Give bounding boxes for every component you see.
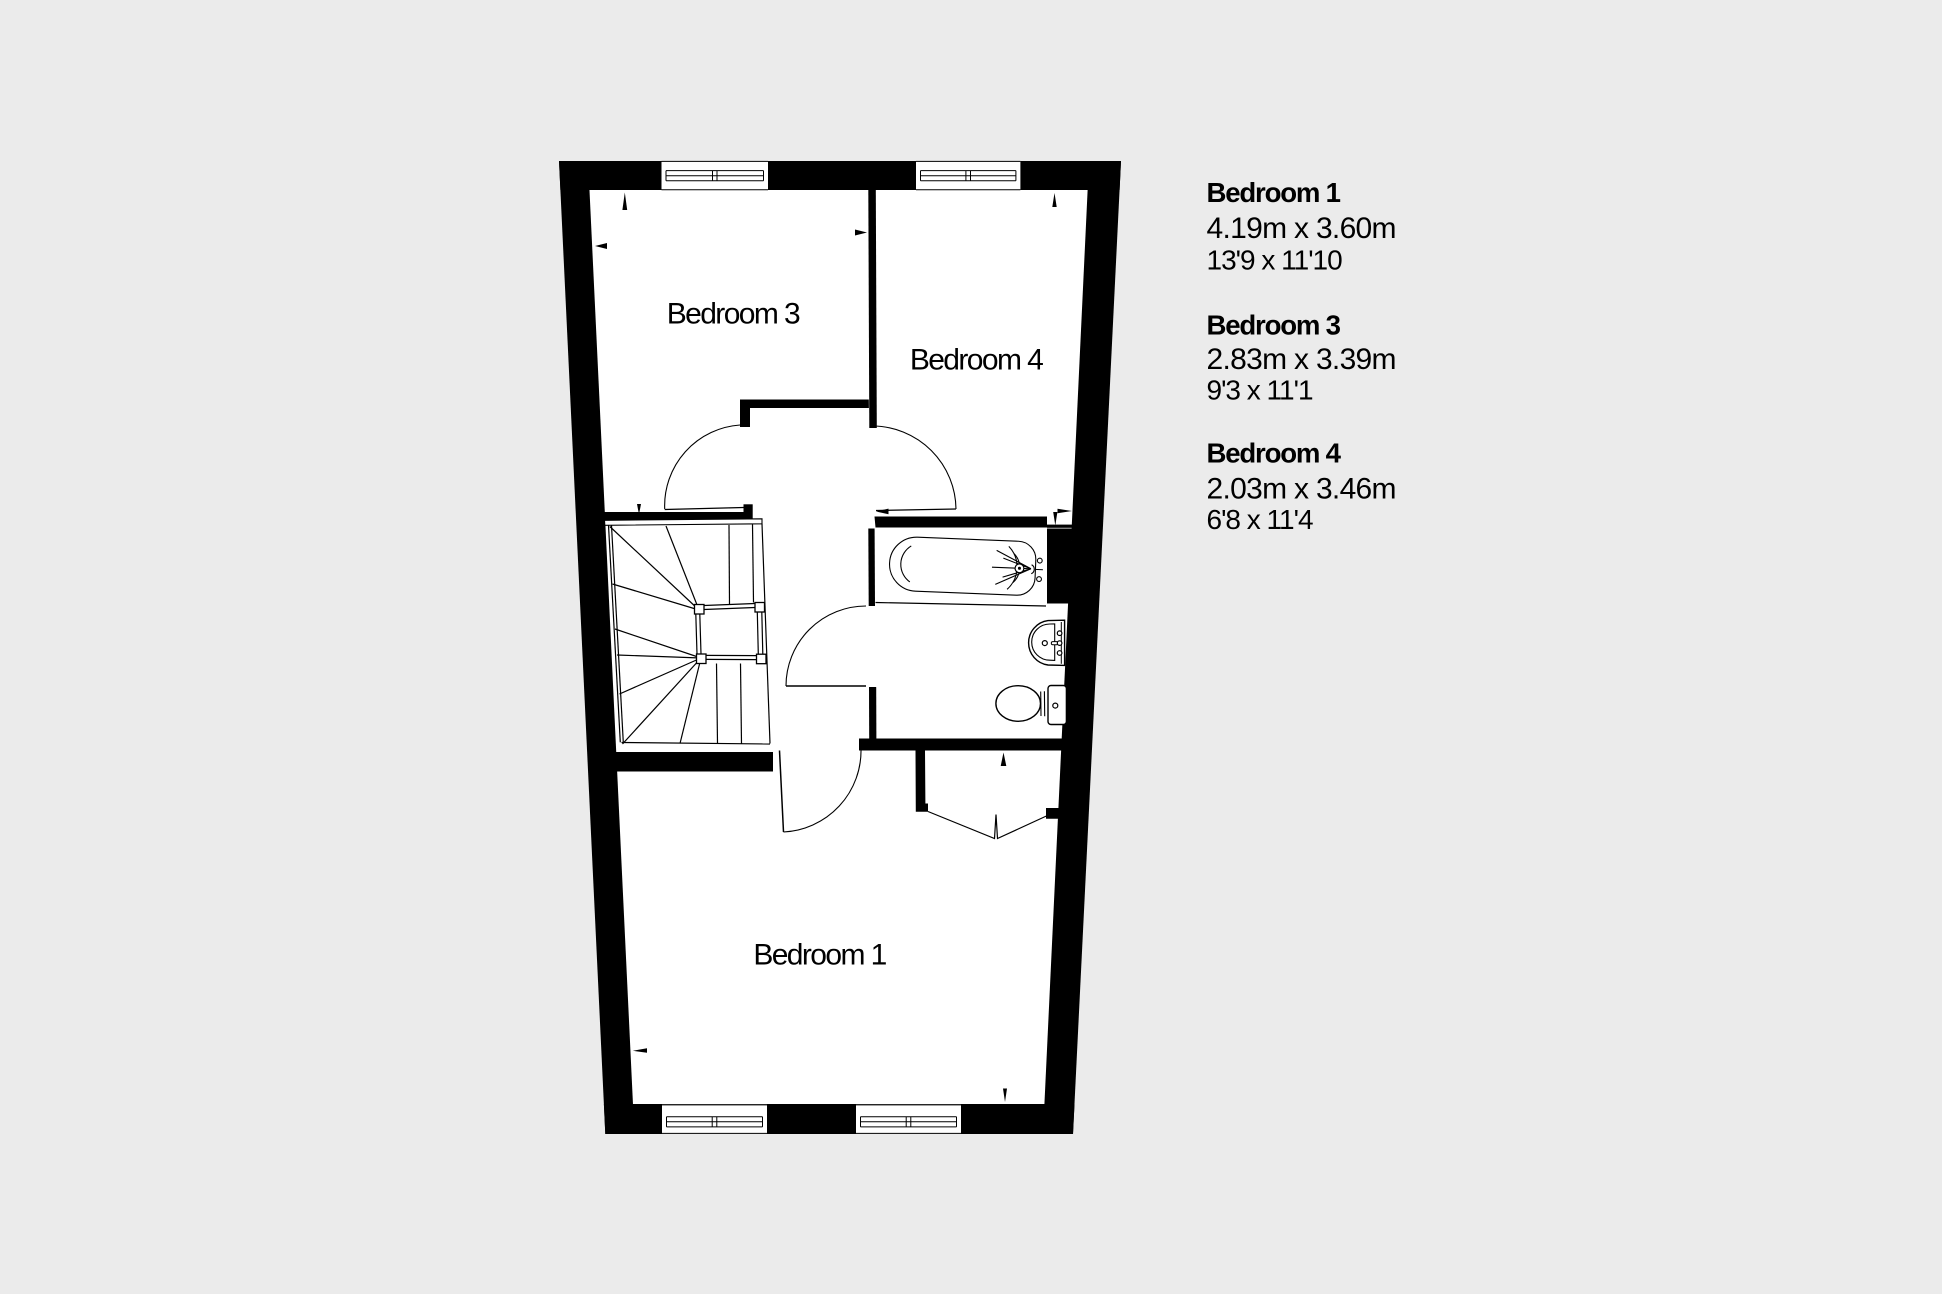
svg-text:Bedroom 1: Bedroom 1 bbox=[753, 939, 886, 972]
svg-text:2.83m x 3.39m: 2.83m x 3.39m bbox=[1207, 343, 1396, 376]
svg-text:Bedroom 4: Bedroom 4 bbox=[910, 344, 1043, 377]
svg-text:Bedroom 1: Bedroom 1 bbox=[1207, 177, 1341, 208]
svg-text:Bedroom 4: Bedroom 4 bbox=[1207, 438, 1342, 469]
svg-text:6'8 x 11'4: 6'8 x 11'4 bbox=[1207, 504, 1313, 535]
svg-text:13'9 x 11'10: 13'9 x 11'10 bbox=[1207, 245, 1343, 276]
svg-text:Bedroom 3: Bedroom 3 bbox=[667, 297, 800, 330]
svg-text:9'3 x 11'1: 9'3 x 11'1 bbox=[1207, 375, 1313, 406]
svg-text:4.19m x 3.60m: 4.19m x 3.60m bbox=[1207, 212, 1396, 245]
svg-text:Bedroom 3: Bedroom 3 bbox=[1207, 310, 1341, 341]
svg-text:2.03m x 3.46m: 2.03m x 3.46m bbox=[1207, 473, 1396, 506]
